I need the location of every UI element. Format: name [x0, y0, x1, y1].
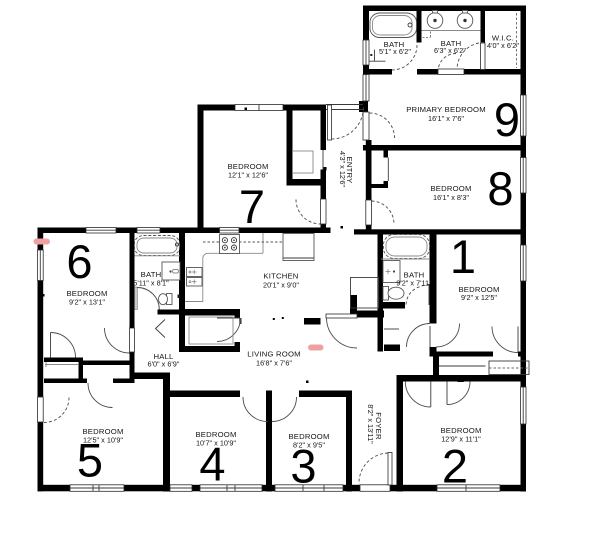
svg-text:2: 2 [442, 440, 468, 493]
svg-text:16'8" x 7'6": 16'8" x 7'6" [256, 359, 292, 368]
svg-text:7: 7 [239, 180, 265, 233]
svg-text:16'1" x 7'6": 16'1" x 7'6" [428, 114, 464, 123]
svg-text:BEDROOM: BEDROOM [430, 184, 471, 193]
svg-text:LIVING ROOM: LIVING ROOM [247, 350, 300, 359]
svg-text:4'3" x 12'6": 4'3" x 12'6" [338, 151, 347, 187]
svg-text:4'0" x 6'2": 4'0" x 6'2" [487, 41, 519, 50]
svg-text:9'2" x 13'1": 9'2" x 13'1" [69, 298, 105, 307]
svg-text:6'3" x 6'2": 6'3" x 6'2" [434, 46, 466, 55]
svg-text:8: 8 [487, 162, 513, 215]
svg-text:20'1" x 9'0": 20'1" x 9'0" [263, 281, 299, 290]
svg-text:KITCHEN: KITCHEN [263, 272, 298, 281]
svg-text:16'1" x 8'3": 16'1" x 8'3" [433, 193, 469, 202]
svg-text:5'1" x 6'2": 5'1" x 6'2" [379, 47, 411, 56]
svg-text:9'2" x 7'11": 9'2" x 7'11" [396, 279, 432, 288]
svg-text:5'11" x 8'1": 5'11" x 8'1" [133, 279, 169, 288]
svg-text:9'2" x 12'5": 9'2" x 12'5" [461, 293, 497, 302]
svg-text:5: 5 [77, 434, 103, 487]
svg-text:6'0" x 6'9": 6'0" x 6'9" [148, 360, 180, 369]
svg-text:12'1" x 12'6": 12'1" x 12'6" [228, 171, 268, 180]
svg-text:4: 4 [199, 438, 225, 491]
svg-text:3: 3 [290, 440, 316, 493]
svg-text:6: 6 [66, 235, 92, 288]
svg-text:9: 9 [494, 93, 520, 146]
svg-text:PRIMARY BEDROOM: PRIMARY BEDROOM [406, 105, 486, 114]
svg-text:8'2" x 13'11": 8'2" x 13'11" [366, 404, 375, 444]
svg-text:1: 1 [450, 230, 476, 283]
